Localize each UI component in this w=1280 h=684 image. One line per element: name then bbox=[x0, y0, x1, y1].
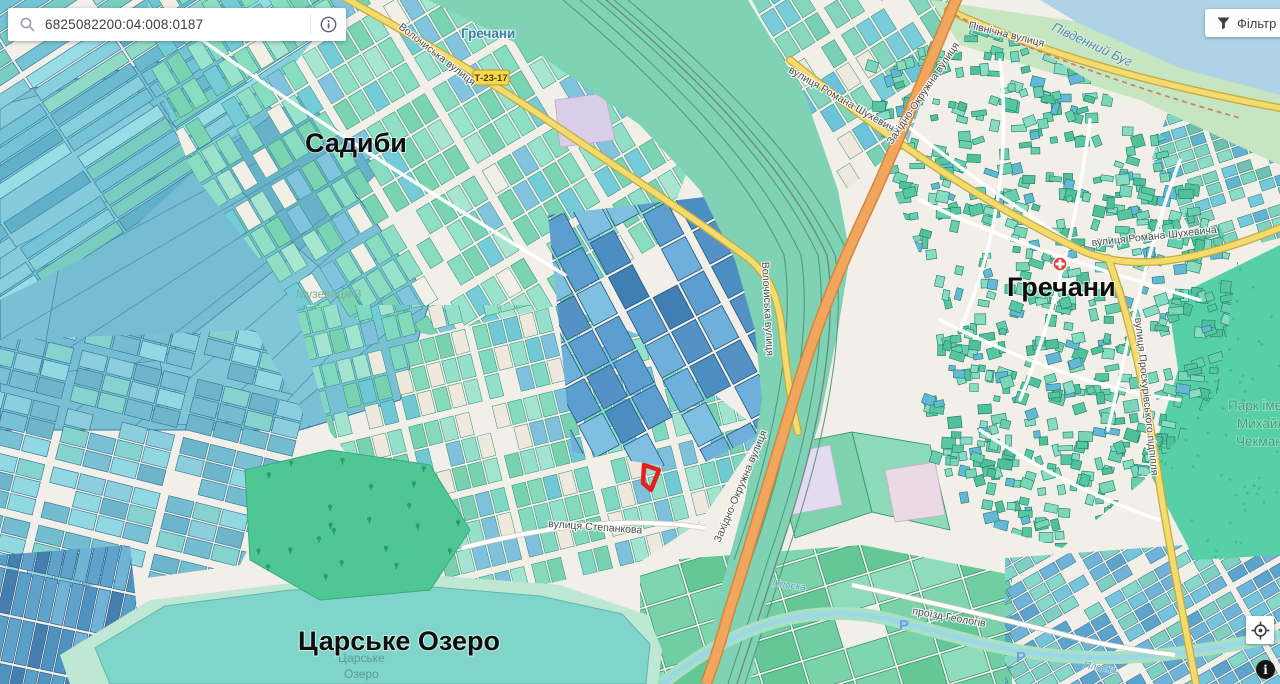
search-icon bbox=[20, 17, 35, 32]
place-label-tsarske-ozero: Царське Озеро bbox=[298, 626, 500, 656]
park-label-line3: Чекмана bbox=[1236, 434, 1280, 449]
filter-icon bbox=[1217, 17, 1230, 30]
area-label-muzevytsia: Музевиця-3 bbox=[296, 287, 362, 301]
station-label-hrechany: Гречани bbox=[461, 26, 515, 41]
locate-button[interactable] bbox=[1246, 616, 1274, 644]
cadastral-map-app: Т-23-17 P P Волочиська вулиця Волочиська… bbox=[0, 0, 1280, 684]
place-label-sadyby: Садиби bbox=[305, 128, 407, 158]
road-shield: Т-23-17 bbox=[473, 70, 509, 85]
search-input[interactable]: 6825082200:04:008:0187 bbox=[45, 17, 310, 32]
info-icon-glyph: i bbox=[1263, 663, 1268, 677]
park-label-line2: Михайла bbox=[1237, 416, 1280, 431]
parking-icon: P bbox=[1016, 649, 1026, 666]
search-divider bbox=[310, 15, 311, 35]
lake-name-line2: Озеро bbox=[344, 667, 379, 681]
map-canvas[interactable]: Т-23-17 P P Волочиська вулиця Волочиська… bbox=[0, 0, 1280, 684]
hospital-icon bbox=[1053, 257, 1067, 271]
road-shield-label: Т-23-17 bbox=[474, 73, 507, 84]
locate-icon bbox=[1251, 621, 1270, 640]
place-label-hrechany: Гречани bbox=[1007, 272, 1116, 302]
filter-button-label: Фільтр bbox=[1237, 16, 1276, 31]
info-icon[interactable]: i bbox=[1256, 660, 1275, 679]
search-info-icon[interactable] bbox=[320, 16, 337, 33]
filter-button[interactable]: Фільтр bbox=[1205, 9, 1280, 37]
search-box[interactable]: 6825082200:04:008:0187 bbox=[8, 8, 346, 41]
park-label-line1: Парк імені bbox=[1228, 398, 1280, 413]
parking-icon: P bbox=[899, 617, 909, 634]
